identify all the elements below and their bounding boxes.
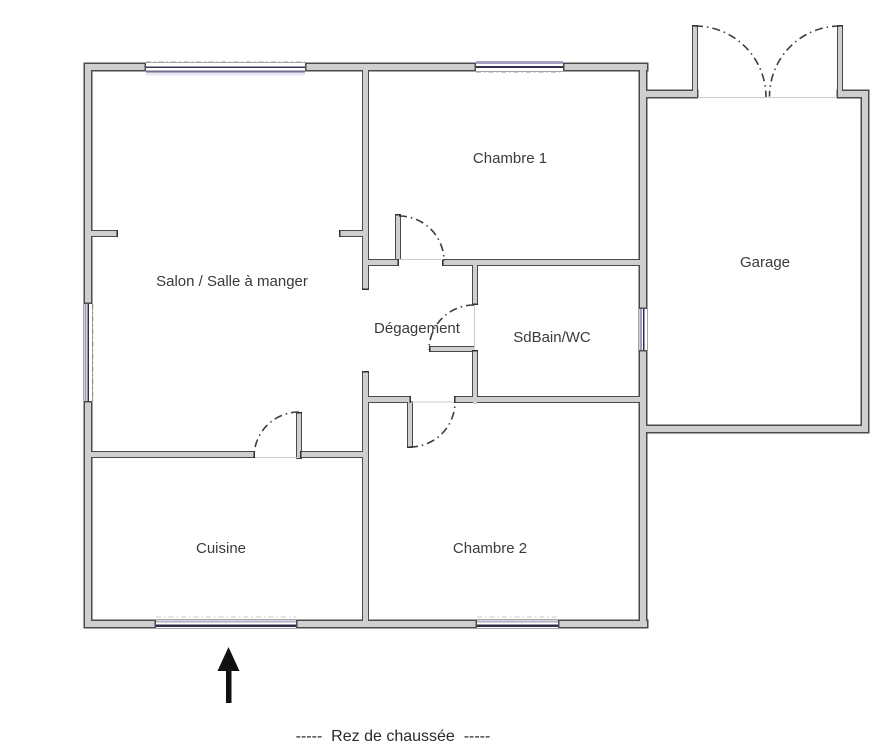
svg-text:Chambre 1: Chambre 1	[473, 150, 547, 167]
svg-text:Dégagement: Dégagement	[374, 320, 461, 337]
svg-text:Salon / Salle à manger: Salon / Salle à manger	[156, 273, 308, 290]
svg-text:Cuisine: Cuisine	[196, 540, 246, 557]
svg-text:Garage: Garage	[740, 254, 790, 271]
svg-text:SdBain/WC: SdBain/WC	[513, 329, 591, 346]
svg-text:Chambre 2: Chambre 2	[453, 540, 527, 557]
svg-text:----- Rez de chaussée -----: ----- Rez de chaussée -----	[296, 728, 491, 745]
